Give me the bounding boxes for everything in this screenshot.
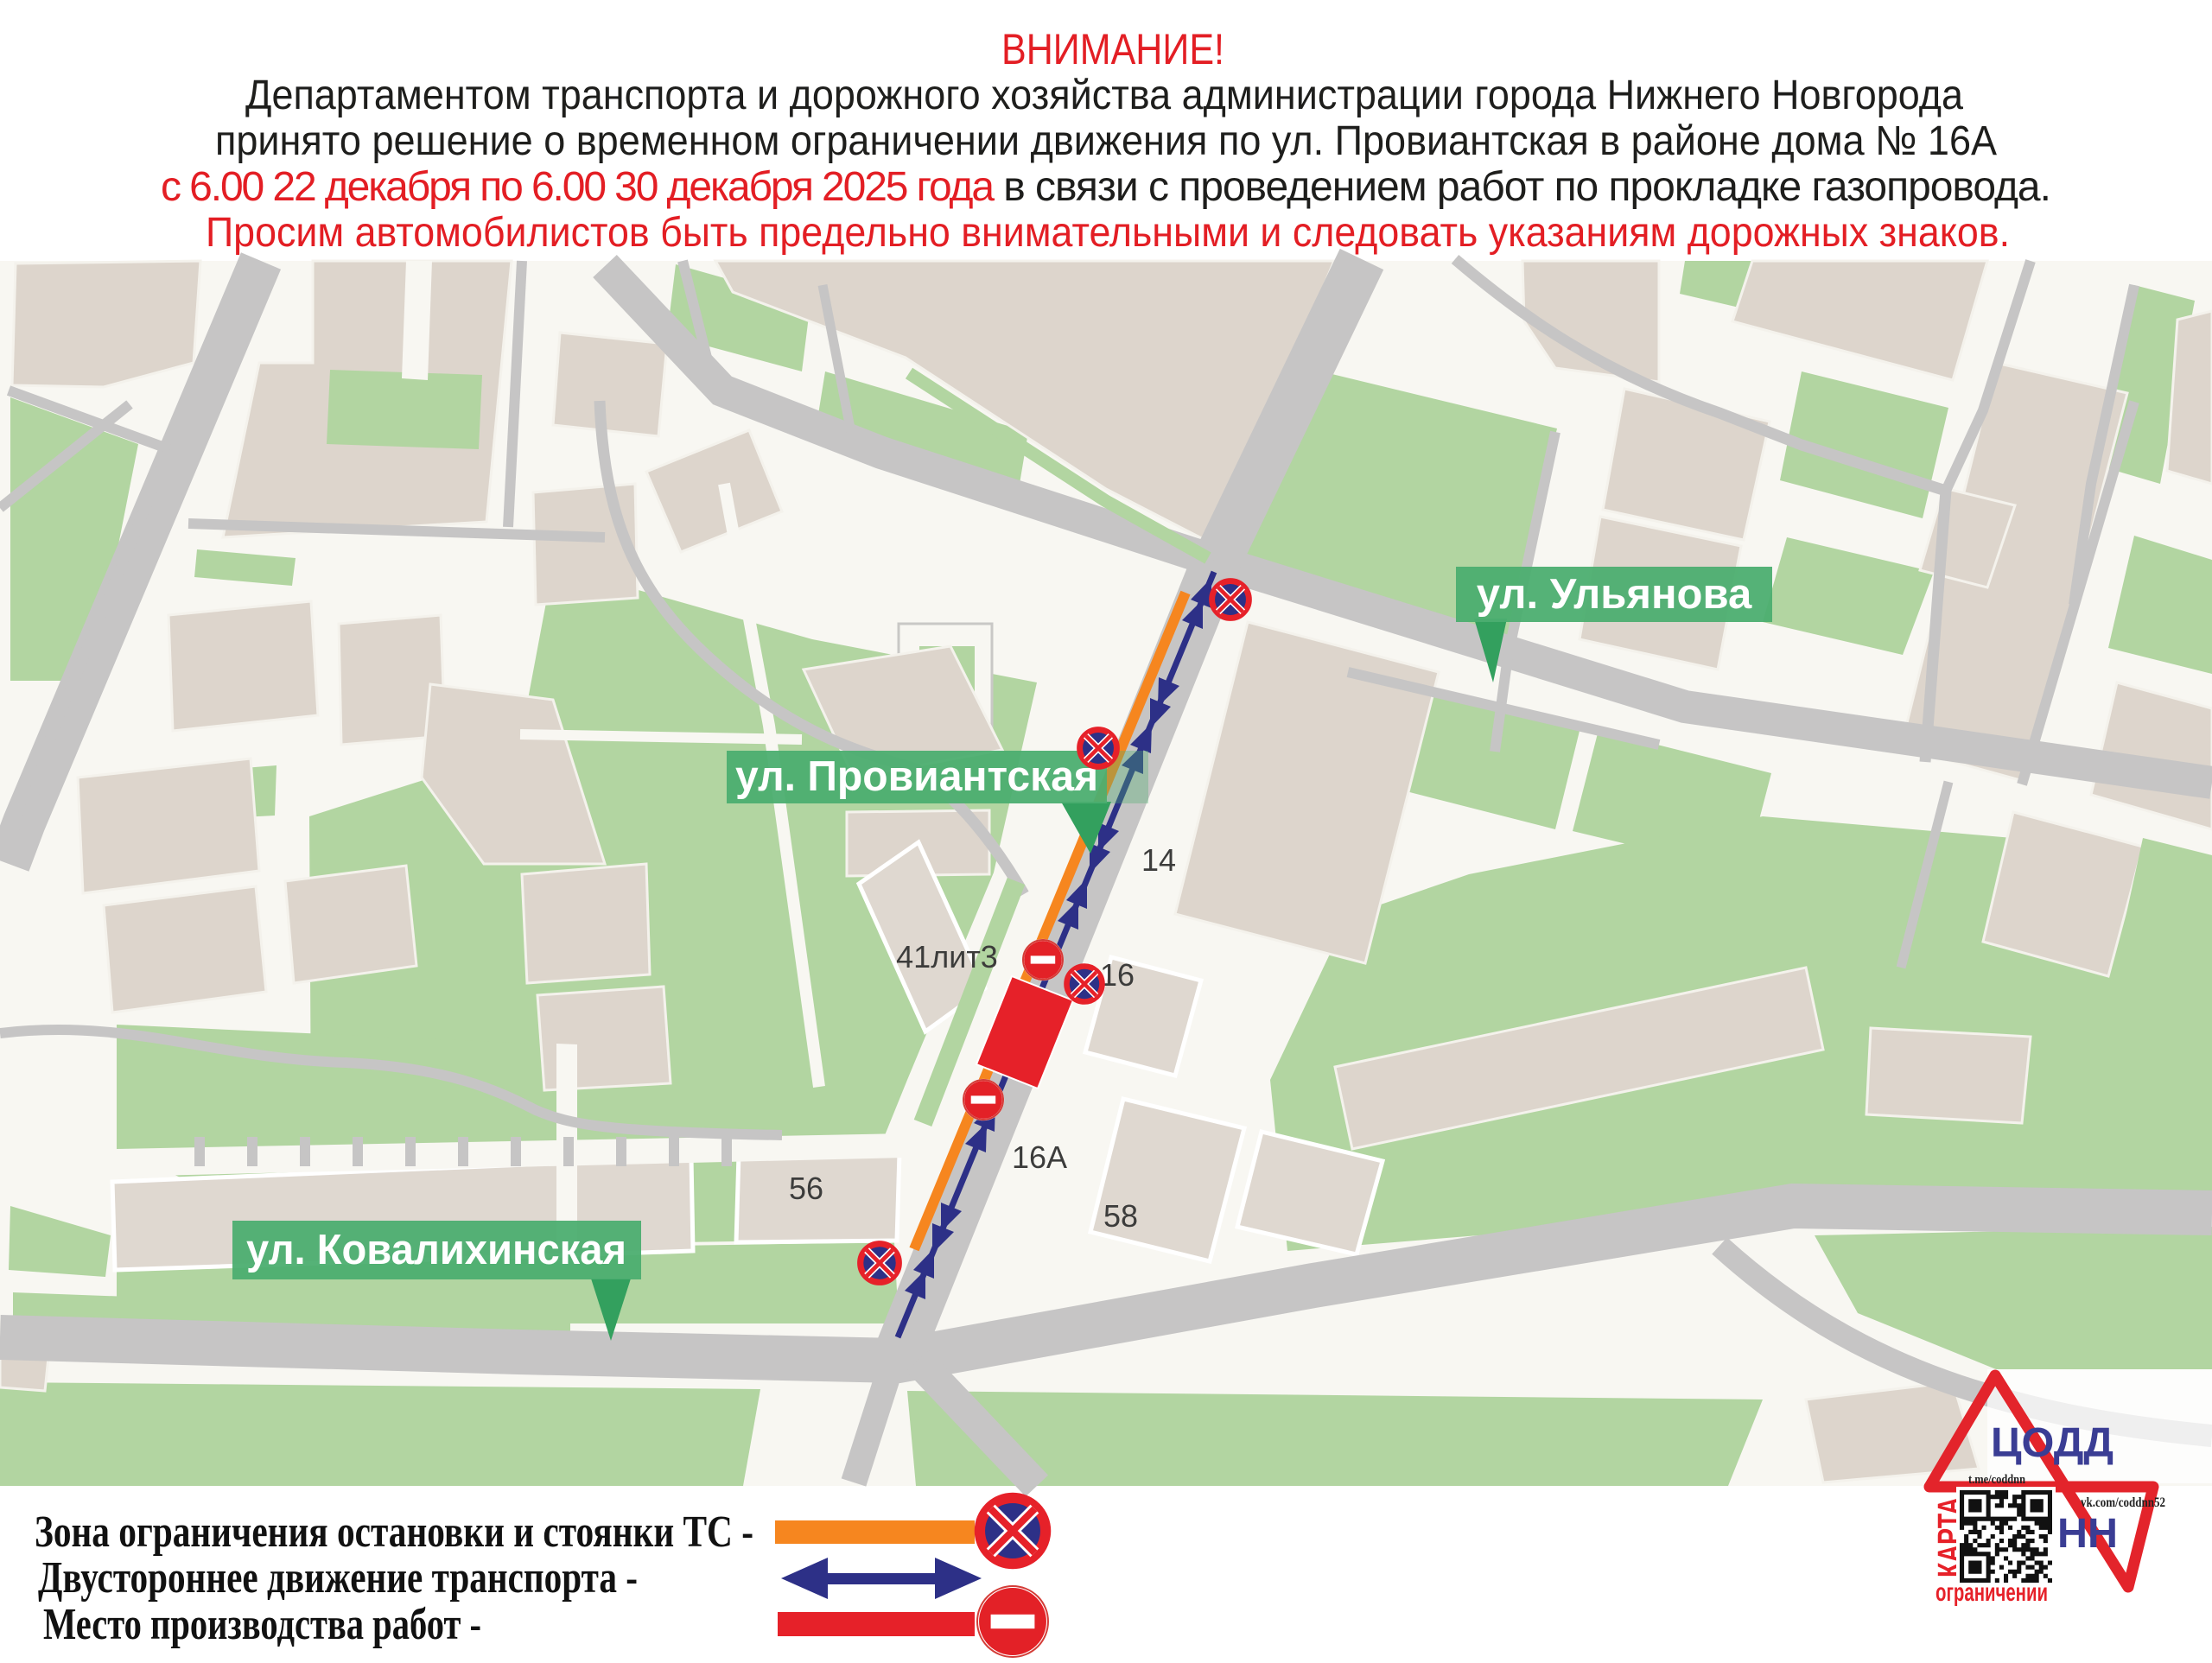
svg-text:58: 58 xyxy=(1103,1198,1138,1234)
svg-text:Зона ограничения остановки и с: Зона ограничения остановки и стоянки ТС … xyxy=(35,1507,753,1557)
svg-text:16А: 16А xyxy=(1012,1139,1067,1175)
svg-text:Просим автомобилистов быть пре: Просим автомобилистов быть предельно вни… xyxy=(206,210,2010,256)
svg-text:ул. Ульянова: ул. Ульянова xyxy=(1477,571,1752,618)
svg-text:Департаментом транспорта и дор: Департаментом транспорта и дорожного хоз… xyxy=(245,73,1963,118)
svg-text:56: 56 xyxy=(789,1171,823,1206)
svg-text:16: 16 xyxy=(1100,957,1135,993)
svg-text:ул. Ковалихинская: ул. Ковалихинская xyxy=(246,1227,626,1273)
svg-text:Место производства работ -: Место производства работ - xyxy=(43,1600,481,1649)
svg-text:41лит3: 41лит3 xyxy=(896,939,998,974)
svg-text:ул. Провиантская: ул. Провиантская xyxy=(735,753,1098,800)
svg-text:НН: НН xyxy=(2057,1511,2118,1557)
svg-text:Двустороннее движение транспор: Двустороннее движение транспорта - xyxy=(38,1553,638,1603)
svg-text:ЦОДД: ЦОДД xyxy=(1991,1420,2113,1466)
svg-text:принято решение о временном ог: принято решение о временном ограничении … xyxy=(215,118,1997,164)
svg-text:с 6.00 22 декабря по 6.00 30 д: с 6.00 22 декабря по 6.00 30 декабря 202… xyxy=(161,164,2051,210)
svg-text:ВНИМАНИЕ!: ВНИМАНИЕ! xyxy=(1001,25,1224,73)
svg-text:vk.com/coddnn52: vk.com/coddnn52 xyxy=(2081,1495,2165,1510)
svg-text:t.me/coddnn: t.me/coddnn xyxy=(1968,1473,2026,1487)
svg-text:14: 14 xyxy=(1141,842,1176,878)
